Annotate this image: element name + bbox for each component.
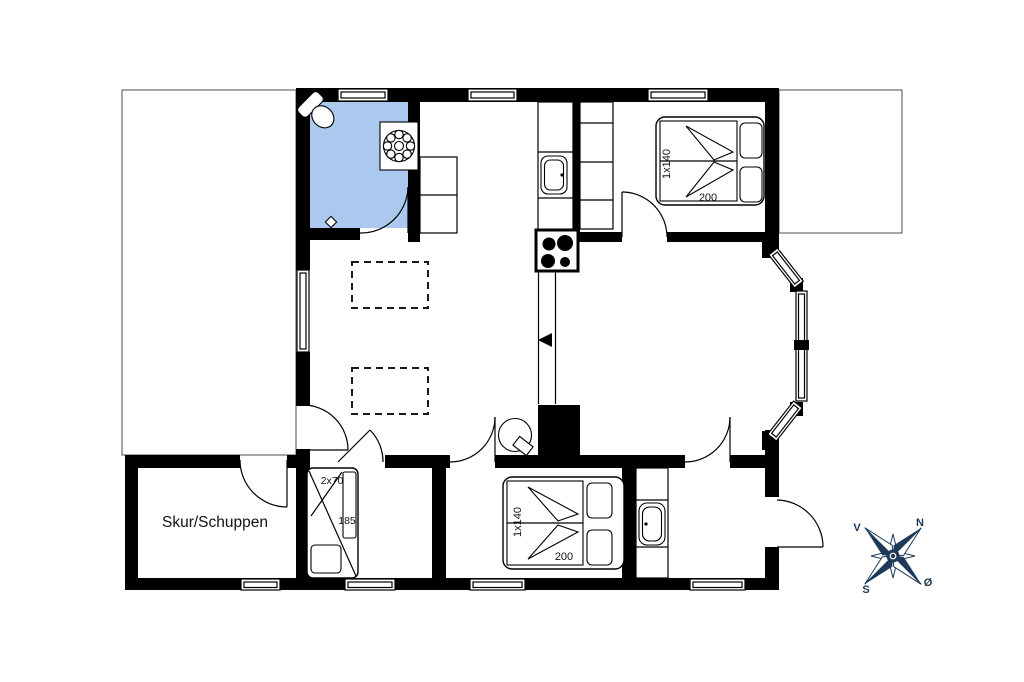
bed1-length-label: 200 <box>699 192 717 204</box>
kitchen <box>420 102 613 271</box>
wall-segment <box>125 578 779 590</box>
door-bedroom2 <box>450 417 495 462</box>
shed-label: Skur/Schuppen <box>162 514 268 531</box>
compass-center <box>887 550 900 563</box>
window <box>241 579 280 590</box>
washbasin <box>639 503 665 545</box>
bed2-size-label: 1x140 <box>512 507 524 537</box>
door-east-exterior <box>777 500 823 547</box>
bed2: 1x140 200 <box>503 477 624 569</box>
wall-segment <box>495 455 685 468</box>
door-terrace <box>303 405 348 450</box>
washbasin-unit <box>380 122 418 170</box>
bed2-length-label: 200 <box>555 551 573 563</box>
bunk-length-label: 185 <box>338 515 356 527</box>
wall-segment <box>408 228 420 242</box>
passage <box>538 271 556 404</box>
bed1-size-label: 1x140 <box>661 149 673 179</box>
window <box>297 270 309 352</box>
compass-south-label: S <box>862 584 869 596</box>
door-bunkroom <box>338 430 383 462</box>
terrace-northeast <box>779 90 902 233</box>
bathroom2-fixtures <box>636 468 668 578</box>
wall-segment <box>432 455 446 578</box>
door-shed <box>240 460 287 507</box>
dashed-table <box>352 262 428 308</box>
wall-segment <box>125 455 240 468</box>
floor-plan-page: 1x140 200 1x140 200 2x70 185 Skur/S <box>0 0 1024 682</box>
stove <box>536 230 578 271</box>
wall-segment <box>287 455 310 468</box>
window <box>468 89 517 101</box>
wall-segment <box>310 228 360 240</box>
bunk-bed: 2x70 185 <box>307 468 358 578</box>
compass-north-label: N <box>916 517 924 529</box>
window <box>470 579 525 590</box>
window <box>690 579 745 590</box>
compass: V N S Ø <box>853 517 932 596</box>
wardrobe-column <box>580 102 613 229</box>
door-bathroom2 <box>685 417 730 462</box>
dashed-table <box>352 368 428 414</box>
wall-segment <box>667 232 766 242</box>
window <box>338 89 388 101</box>
wall-segment <box>573 232 622 242</box>
compass-west-label: V <box>853 522 861 534</box>
window <box>648 89 708 101</box>
kitchen-sink <box>541 156 567 194</box>
wall-segment <box>765 88 779 240</box>
bed1: 1x140 200 <box>656 117 764 205</box>
terrace-west <box>122 90 296 455</box>
window <box>345 579 395 590</box>
entry-arrow <box>538 333 552 347</box>
compass-east-label: Ø <box>924 577 933 589</box>
wall-segment <box>125 455 138 590</box>
wood-stove <box>499 419 534 456</box>
floor-plan: 1x140 200 1x140 200 2x70 185 Skur/S <box>0 0 1024 682</box>
bunk-size-label: 2x70 <box>321 475 344 487</box>
wall-segment <box>296 352 310 406</box>
chimney <box>538 405 580 462</box>
wall-segment <box>765 547 779 590</box>
kitchen-cabinet-left <box>420 157 457 233</box>
wall-segment <box>573 102 580 232</box>
